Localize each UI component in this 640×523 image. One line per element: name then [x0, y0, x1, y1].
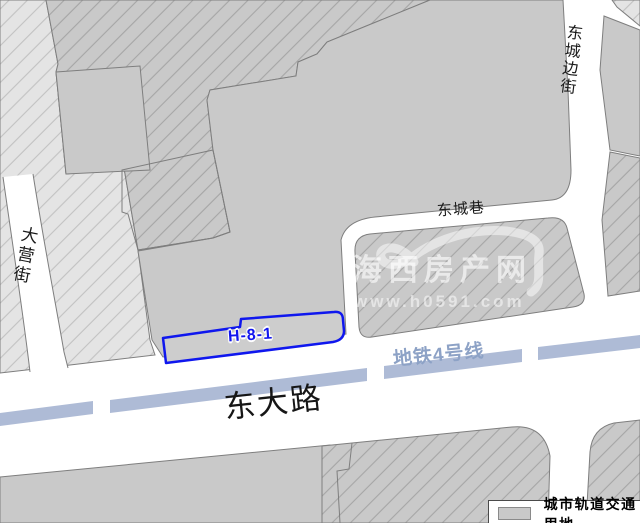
map-canvas	[0, 0, 640, 523]
legend-swatch-rail-transit	[498, 507, 531, 520]
planning-map: 大营街 东城边街 东城巷 东大路 地铁4号线 H-8-1 海西房产网 www.h…	[0, 0, 640, 523]
legend-label-rail-transit: 城市轨道交通用地	[544, 494, 640, 523]
legend: 城市轨道交通用地	[488, 500, 640, 523]
lane-label-dongchengxiang: 东城巷	[437, 200, 486, 218]
parcel-label-h-8-1: H-8-1	[227, 326, 273, 345]
watermark-site-url: www.h0591.com	[354, 293, 525, 310]
watermark-site-name: 海西房产网	[352, 256, 532, 286]
block-east-hatched	[602, 152, 640, 296]
block-upper-plain	[56, 66, 150, 174]
